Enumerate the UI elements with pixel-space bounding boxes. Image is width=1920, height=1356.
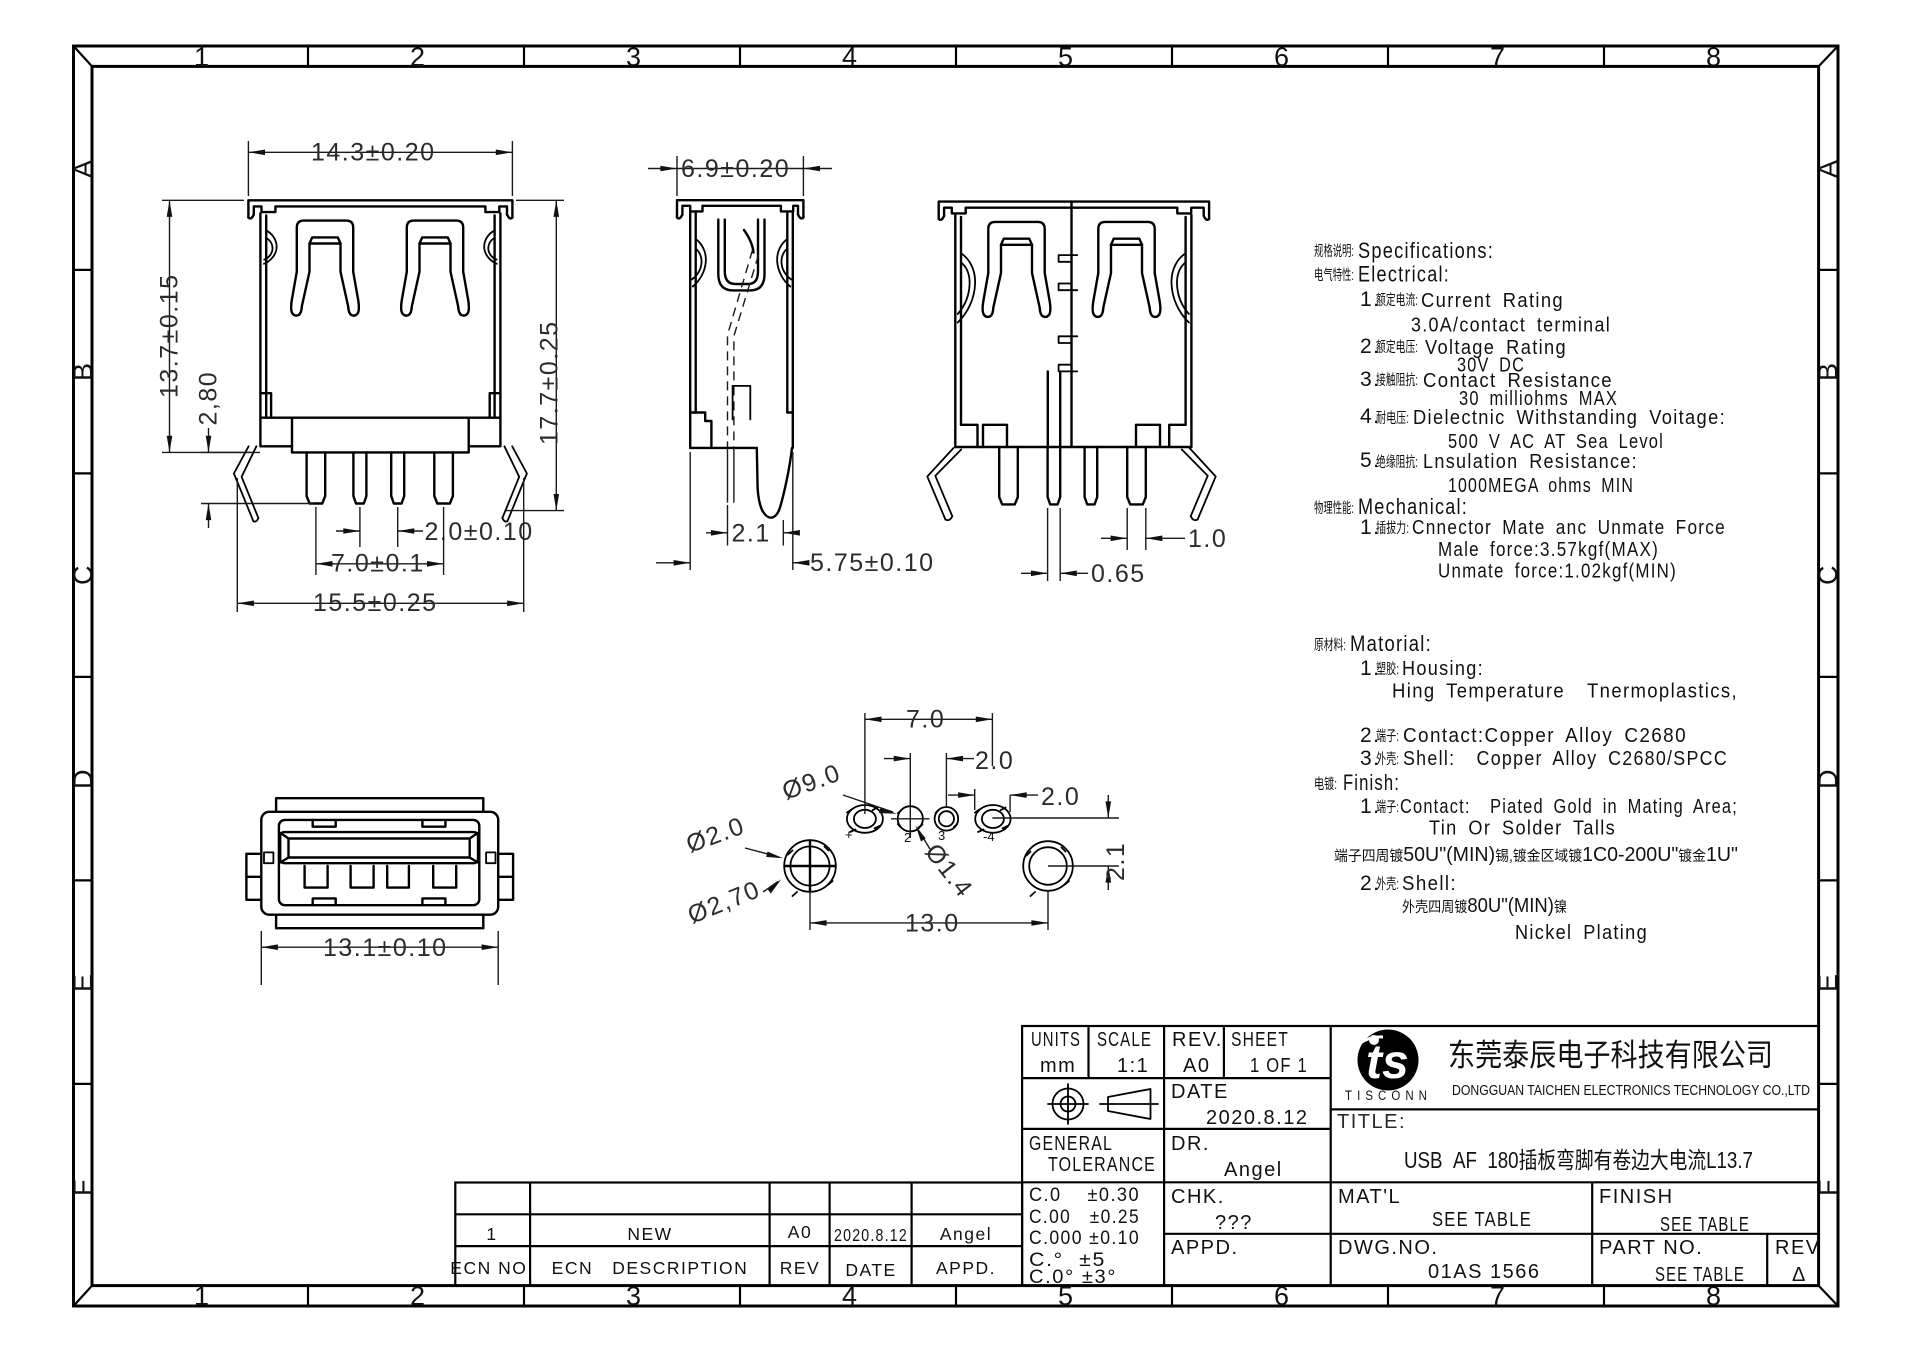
svg-text:A0: A0 (1183, 1055, 1210, 1077)
svg-text:PART NO.: PART NO. (1599, 1237, 1703, 1259)
svg-text:7: 7 (1490, 42, 1505, 72)
svg-text:SHEET: SHEET (1231, 1029, 1289, 1051)
svg-text:2.: 2. (1360, 872, 1381, 895)
svg-text:2: 2 (410, 42, 425, 72)
svg-text:DATE: DATE (1171, 1081, 1229, 1103)
svg-text:2,80: 2,80 (195, 371, 223, 426)
svg-text:C: C (1813, 566, 1843, 586)
svg-text:2.1: 2.1 (1102, 842, 1130, 881)
svg-text:Matorial:: Matorial: (1350, 631, 1432, 656)
svg-text:REV: REV (1775, 1237, 1821, 1259)
svg-text:Cnnector Mate anc Unmate Force: Cnnector Mate anc Unmate Force (1412, 516, 1726, 539)
svg-text:Housing:: Housing: (1402, 657, 1484, 680)
svg-text:17.7±0.25: 17.7±0.25 (536, 320, 564, 445)
svg-text:额定电压:: 额定电压: (1376, 339, 1418, 356)
svg-text:电气特性:: 电气特性: (1314, 267, 1354, 284)
svg-text:NEW: NEW (627, 1224, 672, 1244)
svg-text:原材料:: 原材料: (1314, 637, 1346, 654)
svg-text:Current Rating: Current Rating (1421, 289, 1564, 312)
svg-text:REV: REV (780, 1258, 820, 1278)
svg-text:15.5±0.25: 15.5±0.25 (313, 589, 438, 617)
svg-text:Shell: Copper Alloy C2680/SPC: Shell: Copper Alloy C2680/SPCC (1403, 747, 1728, 770)
svg-text:物理性能:: 物理性能: (1314, 500, 1354, 517)
svg-text:Hing Temperature Tnermoplasti: Hing Temperature Tnermoplastics, (1392, 680, 1738, 703)
svg-text:Lnsulation Resistance:: Lnsulation Resistance: (1423, 450, 1638, 473)
svg-text:FINISH: FINISH (1599, 1186, 1674, 1208)
svg-text:2020.8.12: 2020.8.12 (834, 1225, 908, 1245)
svg-text:2.0: 2.0 (1041, 783, 1080, 811)
svg-text:Dielectnic Withstanding Voitag: Dielectnic Withstanding Voitage: (1413, 406, 1726, 429)
svg-text:C: C (68, 566, 98, 586)
svg-text:4.: 4. (1360, 405, 1381, 428)
svg-text:5: 5 (1058, 42, 1073, 72)
svg-text:MAT'L: MAT'L (1338, 1186, 1401, 1208)
svg-text:7.0±0.1: 7.0±0.1 (331, 550, 425, 578)
svg-text:-4: -4 (983, 829, 995, 844)
svg-text:Nickel Plating: Nickel Plating (1515, 921, 1648, 944)
svg-text:+: + (845, 827, 853, 842)
svg-text:REV.: REV. (1172, 1029, 1223, 1051)
svg-text:Finish:: Finish: (1343, 770, 1400, 795)
svg-text:6.9±0.20: 6.9±0.20 (681, 155, 790, 183)
svg-text:2: 2 (410, 1281, 425, 1311)
svg-text:2.: 2. (1360, 335, 1381, 358)
svg-text:4: 4 (842, 42, 857, 72)
svg-text:A: A (1813, 160, 1843, 178)
svg-text:UNITS: UNITS (1031, 1029, 1081, 1051)
svg-text:2020.8.12: 2020.8.12 (1206, 1107, 1308, 1129)
svg-text:1 OF 1: 1 OF 1 (1250, 1055, 1308, 1077)
svg-text:A0: A0 (788, 1222, 812, 1242)
svg-text:Unmate force:1.02kgf(MIN): Unmate force:1.02kgf(MIN) (1438, 560, 1677, 583)
svg-text:D: D (1813, 770, 1843, 790)
svg-text:1.: 1. (1360, 795, 1381, 818)
svg-text:2.1: 2.1 (732, 520, 771, 548)
svg-text:2.0: 2.0 (975, 747, 1014, 775)
svg-text:接触阻抗:: 接触阻抗: (1376, 372, 1418, 389)
svg-text:3.: 3. (1360, 747, 1381, 770)
svg-text:5.75±0.10: 5.75±0.10 (810, 549, 935, 577)
svg-text:TISCONN: TISCONN (1345, 1088, 1432, 1103)
svg-text:B: B (68, 363, 98, 381)
svg-text:13.0: 13.0 (905, 910, 960, 938)
svg-text:ECN DESCRIPTION: ECN DESCRIPTION (552, 1258, 749, 1278)
svg-text:1: 1 (194, 1281, 209, 1311)
svg-text:Angel: Angel (940, 1224, 992, 1244)
svg-text:???: ??? (1215, 1212, 1253, 1234)
svg-text:1.0: 1.0 (1188, 525, 1227, 553)
svg-text:D: D (68, 770, 98, 790)
svg-text:额定电流:: 额定电流: (1376, 292, 1418, 309)
svg-text:SEE TABLE: SEE TABLE (1660, 1214, 1750, 1236)
svg-text:电镀:: 电镀: (1314, 776, 1337, 793)
svg-text:Shell:: Shell: (1402, 872, 1457, 895)
svg-text:1.: 1. (1360, 516, 1381, 539)
svg-text:SEE TABLE: SEE TABLE (1655, 1264, 1745, 1286)
svg-text:C.000 ±0.10: C.000 ±0.10 (1029, 1228, 1140, 1249)
svg-text:B: B (1813, 363, 1843, 381)
svg-text:DONGGUAN TAICHEN ELECTRONICS T: DONGGUAN TAICHEN ELECTRONICS TECHNOLOGY … (1452, 1083, 1810, 1099)
svg-text:C.0 ±0.30: C.0 ±0.30 (1029, 1185, 1140, 1206)
svg-text:规格说明:: 规格说明: (1314, 243, 1354, 260)
svg-text:1: 1 (486, 1224, 497, 1244)
svg-text:A: A (68, 160, 98, 178)
svg-text:Angel: Angel (1224, 1159, 1283, 1181)
svg-text:1.: 1. (1360, 657, 1381, 680)
svg-text:8: 8 (1706, 42, 1721, 72)
svg-text:USB AF 180插板弯脚有卷边大电流L13.7: USB AF 180插板弯脚有卷边大电流L13.7 (1404, 1147, 1753, 1173)
svg-text:E: E (68, 974, 98, 992)
svg-text:1: 1 (194, 42, 209, 72)
svg-text:C.0° ±3°: C.0° ±3° (1029, 1267, 1117, 1288)
svg-text:2: 2 (904, 830, 911, 845)
svg-text:SCALE: SCALE (1097, 1029, 1152, 1051)
svg-text:APPD.: APPD. (936, 1258, 996, 1278)
svg-text:F: F (68, 1180, 98, 1197)
svg-text:13.7±0.15: 13.7±0.15 (156, 273, 184, 398)
svg-text:TITLE:: TITLE: (1337, 1111, 1406, 1133)
svg-text:E: E (1813, 974, 1843, 992)
svg-text:mm: mm (1040, 1055, 1076, 1077)
svg-text:DATE: DATE (845, 1260, 896, 1280)
svg-text:绝缘阻抗:: 绝缘阻抗: (1376, 454, 1418, 471)
svg-text:1:1: 1:1 (1117, 1055, 1149, 1077)
svg-text:6: 6 (1274, 42, 1289, 72)
svg-text:耐电压:: 耐电压: (1376, 410, 1409, 427)
svg-text:SEE TABLE: SEE TABLE (1432, 1209, 1532, 1231)
svg-text:GENERAL: GENERAL (1029, 1133, 1113, 1155)
svg-text:TOLERANCE: TOLERANCE (1048, 1154, 1156, 1176)
svg-text:CHK.: CHK. (1171, 1186, 1225, 1208)
svg-text:0.65: 0.65 (1091, 560, 1146, 588)
svg-text:Contact: Piated Gold in Matin: Contact: Piated Gold in Mating Area; (1400, 795, 1738, 818)
svg-text:Δ: Δ (1792, 1264, 1807, 1286)
svg-text:3.0A/contact terminal: 3.0A/contact terminal (1411, 314, 1611, 337)
svg-text:1.: 1. (1360, 288, 1381, 311)
svg-text:14.3±0.20: 14.3±0.20 (311, 139, 436, 167)
svg-text:Contact:Copper Alloy C2680: Contact:Copper Alloy C2680 (1403, 724, 1687, 747)
svg-text:13.1±0.10: 13.1±0.10 (323, 934, 448, 962)
svg-text:APPD.: APPD. (1171, 1237, 1239, 1259)
svg-text:3.: 3. (1360, 368, 1381, 391)
svg-text:插拔力:: 插拔力: (1376, 520, 1409, 537)
svg-text:DR.: DR. (1171, 1133, 1210, 1155)
svg-text:DWG.NO.: DWG.NO. (1338, 1237, 1439, 1259)
svg-text:Electrical:: Electrical: (1358, 262, 1450, 287)
svg-text:2.0±0.10: 2.0±0.10 (425, 518, 534, 546)
svg-text:Specifications:: Specifications: (1358, 238, 1494, 263)
svg-text:5.: 5. (1360, 449, 1381, 472)
svg-text:3: 3 (626, 42, 641, 72)
svg-text:ECN NO.: ECN NO. (450, 1258, 533, 1278)
svg-text:1000MEGA ohms MIN: 1000MEGA ohms MIN (1448, 474, 1634, 497)
svg-text:Male force:3.57kgf(MAX): Male force:3.57kgf(MAX) (1438, 538, 1659, 561)
svg-text:2.: 2. (1360, 724, 1381, 747)
svg-text:C.00 ±0.25: C.00 ±0.25 (1029, 1207, 1140, 1228)
svg-text:东莞泰辰电子科技有限公司: 东莞泰辰电子科技有限公司 (1448, 1038, 1773, 1073)
svg-text:01AS 1566: 01AS 1566 (1428, 1261, 1540, 1283)
svg-text:7.0: 7.0 (906, 706, 945, 734)
svg-text:Tin Or Solder Talls: Tin Or Solder Talls (1429, 817, 1616, 840)
